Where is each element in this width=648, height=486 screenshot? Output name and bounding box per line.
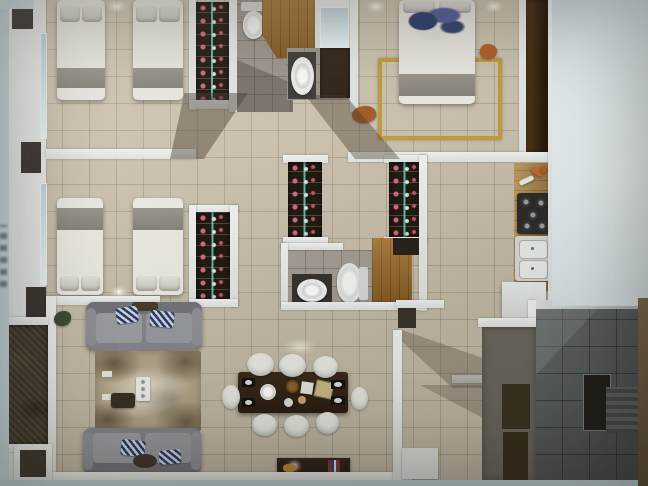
dining-chair <box>316 412 339 434</box>
floor-plan-photo <box>0 0 648 486</box>
pillow <box>82 6 102 22</box>
wall-column <box>21 142 41 173</box>
wall <box>396 300 444 308</box>
gold-decor <box>283 464 296 472</box>
blanket-band <box>133 68 183 88</box>
sofa <box>86 302 202 350</box>
wall <box>393 330 402 481</box>
dining-chair <box>351 387 368 410</box>
wall <box>281 243 343 250</box>
pillow <box>60 6 80 22</box>
dining-chair <box>252 414 277 436</box>
coffee-table <box>136 377 150 401</box>
entry-mat <box>402 448 438 479</box>
patterned-pillow <box>115 306 139 325</box>
dining-chair <box>313 356 338 378</box>
sofa-armrest <box>191 432 201 470</box>
patterned-pillow <box>158 449 181 465</box>
placemat <box>331 380 345 389</box>
tray-oval <box>133 454 157 468</box>
rug-corner-accent <box>102 371 112 377</box>
wall <box>519 0 526 155</box>
brown-dish <box>286 380 299 393</box>
wall <box>229 0 237 112</box>
sink-drain <box>531 247 534 250</box>
sofa-armrest <box>192 308 202 346</box>
bedside-lamp <box>484 0 504 13</box>
double-bed <box>399 0 475 104</box>
pillow <box>159 6 180 22</box>
dining-chair <box>279 354 306 377</box>
dark-cabinet <box>398 308 416 328</box>
blanket-band <box>133 208 183 230</box>
window <box>40 183 47 285</box>
wall <box>478 318 536 327</box>
blanket-band <box>57 208 103 230</box>
closet-dark <box>502 384 530 429</box>
wall <box>281 243 288 307</box>
tray <box>111 393 135 408</box>
pillow <box>81 276 100 291</box>
sofa <box>83 428 201 474</box>
shoe-wardrobe <box>196 212 230 300</box>
blanket-band <box>399 74 475 96</box>
dining-chair <box>222 385 240 409</box>
stairs <box>606 387 638 433</box>
rug-corner-accent <box>102 394 111 400</box>
placemat <box>242 378 255 387</box>
window <box>40 33 47 139</box>
dining-table <box>238 372 348 413</box>
cooktop-4-burner <box>517 193 550 234</box>
dining-chair <box>284 415 309 437</box>
shaft-dark <box>20 450 46 477</box>
window <box>320 7 349 49</box>
wall <box>350 0 358 112</box>
white-tray <box>300 381 314 395</box>
toilet <box>243 11 264 39</box>
dark-cabinet <box>320 48 350 98</box>
shoe-wardrobe <box>389 162 421 237</box>
photo-margin-corner <box>0 0 34 9</box>
bedside-lamp <box>366 0 386 13</box>
mini-plate <box>245 380 252 385</box>
photo-margin-brown <box>638 298 648 486</box>
plate <box>260 384 276 400</box>
pillow <box>136 276 157 291</box>
pillow <box>60 276 79 291</box>
photo-margin-right <box>552 0 648 306</box>
ceiling-light <box>282 338 318 356</box>
pillow <box>136 6 157 22</box>
closet-dark <box>503 432 528 481</box>
blanket-band <box>57 68 105 88</box>
vanity-sink <box>291 57 314 95</box>
shoe-wardrobe <box>288 162 322 237</box>
wall <box>189 0 196 110</box>
small-bowl <box>284 398 293 407</box>
shoe-wardrobe <box>196 2 229 100</box>
mini-plate <box>334 382 342 387</box>
kitchen-utensil <box>540 166 547 173</box>
toilet-tank <box>241 2 265 11</box>
sofa-armrest <box>83 432 93 470</box>
double-sink <box>515 236 550 281</box>
twin-bed <box>133 198 183 295</box>
small-bowl <box>298 396 306 404</box>
ceiling-light <box>106 0 128 13</box>
blue-blanket <box>402 4 472 42</box>
dining-chair <box>247 353 274 376</box>
mini-plate <box>334 398 342 403</box>
twin-bed <box>57 0 105 100</box>
twin-bed <box>133 0 183 100</box>
photo-margin-bottom <box>0 480 648 486</box>
placemat <box>242 398 255 407</box>
wall <box>46 149 196 159</box>
pillow <box>159 276 180 291</box>
mini-plate <box>245 400 252 405</box>
sink-drain <box>531 267 534 270</box>
wall <box>189 205 196 307</box>
sofa-armrest <box>86 308 96 346</box>
placemat <box>331 396 345 405</box>
toilet-tank <box>359 267 368 300</box>
wall <box>419 155 427 311</box>
margin-print-smudge <box>0 225 7 287</box>
twin-bed <box>57 198 103 295</box>
dark-box <box>393 238 419 255</box>
vanity-sink <box>297 279 327 302</box>
wall <box>230 205 238 307</box>
patterned-pillow <box>149 310 175 328</box>
wall <box>348 152 558 162</box>
